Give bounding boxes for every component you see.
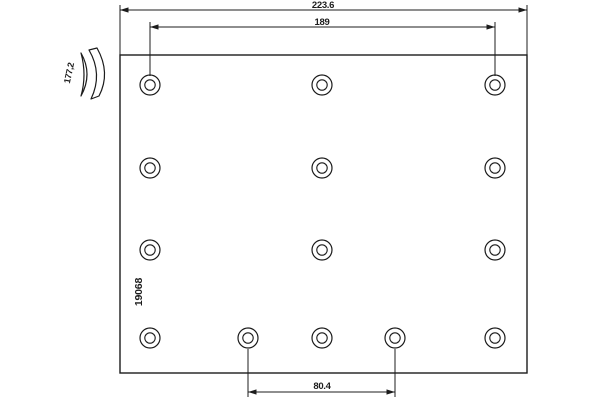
rivet-hole-inner <box>317 245 327 255</box>
rivet-hole-outer <box>485 75 505 95</box>
rivet-hole-outer <box>485 328 505 348</box>
technical-drawing: 223.6 189 80.4 177,2 19068 <box>0 0 600 400</box>
dimension-lower-hole-span-arrow-left <box>248 389 257 394</box>
overall-width-label: 223.6 <box>312 0 334 11</box>
dimension-overall-width-arrow-right <box>519 7 528 12</box>
rivet-hole-outer <box>385 328 405 348</box>
rivet-hole-outer <box>140 158 160 178</box>
rivet-hole-outer <box>140 75 160 95</box>
rivet-hole-inner <box>145 80 155 90</box>
rivet-hole-outer <box>312 158 332 178</box>
curvature-band <box>89 48 105 99</box>
rivet-hole-outer <box>312 75 332 95</box>
rivet-hole-inner <box>317 80 327 90</box>
rivet-hole-inner <box>145 245 155 255</box>
rivet-hole-outer <box>140 328 160 348</box>
rivet-hole-inner <box>390 333 400 343</box>
dimension-lower-hole-span-arrow-right <box>387 389 396 394</box>
dimension-upper-hole-span-arrow-right <box>487 24 496 29</box>
rivet-hole-outer <box>485 158 505 178</box>
dimension-upper-hole-span-arrow-left <box>150 24 159 29</box>
rivet-hole-inner <box>145 333 155 343</box>
rivet-hole-outer <box>312 328 332 348</box>
rivet-hole-outer <box>140 240 160 260</box>
lining-plate-outline <box>120 55 527 373</box>
lining-curvature-symbol <box>81 48 105 99</box>
part-number-label: 19068 <box>133 278 145 307</box>
lower-hole-span-label: 80.4 <box>313 381 331 392</box>
rivet-hole-outer <box>238 328 258 348</box>
dimension-overall-width-arrow-left <box>120 7 129 12</box>
upper-hole-span-label: 189 <box>315 17 330 28</box>
rivet-hole-inner <box>490 333 500 343</box>
drawing-canvas: 223.6 189 80.4 177,2 19068 <box>0 0 600 400</box>
rivet-hole-outer <box>312 240 332 260</box>
rivet-hole-outer <box>485 240 505 260</box>
rivet-hole-inner <box>490 163 500 173</box>
curvature-inner-arc <box>81 53 87 96</box>
rivet-hole-inner <box>317 163 327 173</box>
rivet-hole-inner <box>317 333 327 343</box>
lining-width-label: 177,2 <box>62 61 76 84</box>
rivet-hole-inner <box>145 163 155 173</box>
rivet-hole-inner <box>243 333 253 343</box>
rivet-hole-inner <box>490 245 500 255</box>
rivet-hole-inner <box>490 80 500 90</box>
generated-geometry <box>120 5 527 397</box>
